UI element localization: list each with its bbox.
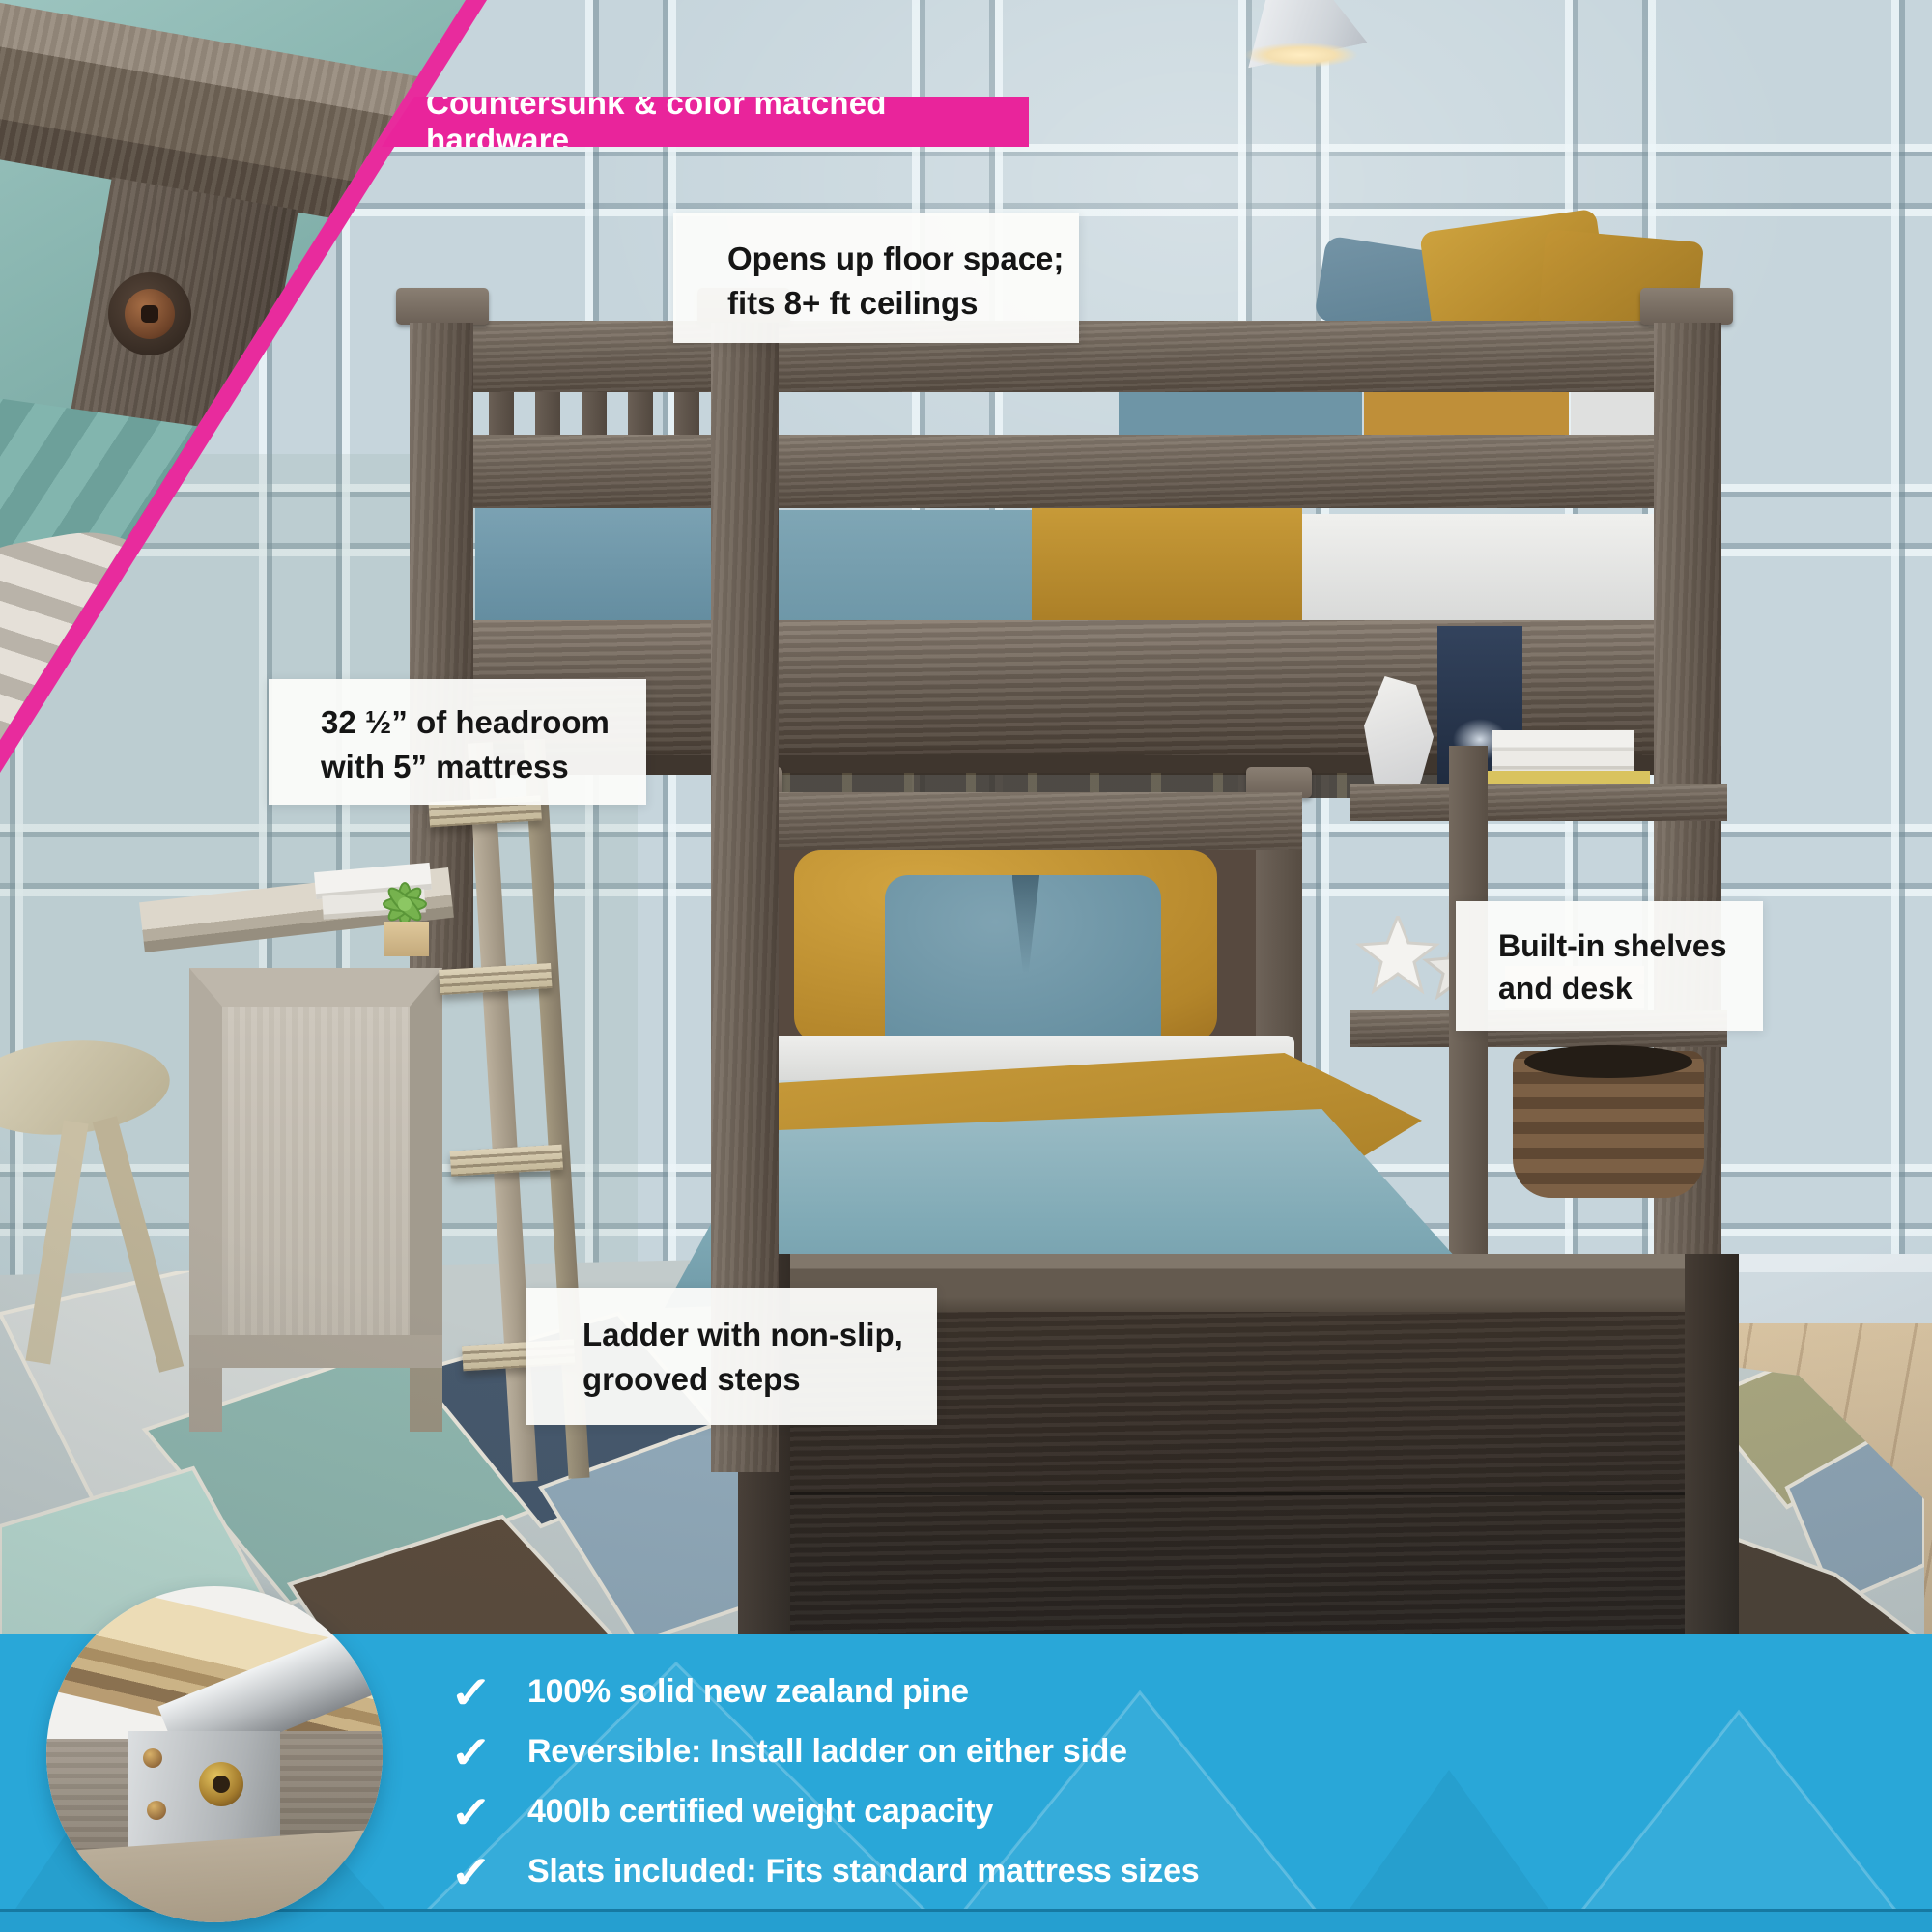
- screw-drive: [141, 305, 158, 323]
- post-cap: [396, 288, 489, 325]
- callout-line: and desk: [1498, 967, 1763, 1009]
- callout-line: Opens up floor space;: [727, 237, 1079, 281]
- footboard-seam: [779, 1492, 1698, 1495]
- checklist-text: 100% solid new zealand pine: [527, 1673, 969, 1711]
- bracket-bolt: [199, 1762, 243, 1806]
- desk-leg: [410, 1368, 442, 1432]
- desk-side-panel: [222, 1007, 410, 1335]
- desk-bottom-rail: [189, 1335, 442, 1368]
- headboard-spindle: [674, 392, 699, 440]
- checklist-text: Slats included: Fits standard mattress s…: [527, 1853, 1199, 1890]
- product-infographic: Countersunk & color matched hardware Ope…: [0, 0, 1932, 1932]
- lamp-glow: [1244, 43, 1358, 68]
- checklist-item: ✓ Reversible: Install ladder on either s…: [454, 1729, 1199, 1775]
- checklist-item: ✓ 100% solid new zealand pine: [454, 1669, 1199, 1715]
- callout-headroom: 32 ½” of headroom with 5” mattress: [269, 679, 646, 805]
- callout-ladder: Ladder with non-slip, grooved steps: [526, 1288, 937, 1425]
- check-icon: ✓: [450, 1786, 512, 1838]
- callout-floor-space: Opens up floor space; fits 8+ ft ceiling…: [673, 213, 1079, 343]
- callout-shelves-desk: Built-in shelves and desk: [1456, 901, 1763, 1031]
- bracket-screw: [143, 1748, 162, 1768]
- callout-line: with 5” mattress: [321, 745, 646, 789]
- loft-blanket-edge: [1032, 508, 1302, 622]
- headboard-spindle: [535, 392, 560, 440]
- wicker-basket: [1513, 1051, 1704, 1198]
- checklist-rows: ✓ 100% solid new zealand pine ✓ Reversib…: [454, 1669, 1199, 1894]
- loft-mattress-side-blue: [475, 506, 719, 622]
- headboard-spindle: [582, 392, 607, 440]
- checklist-text: Reversible: Install ladder on either sid…: [527, 1733, 1127, 1771]
- headboard-spindle: [489, 392, 514, 440]
- ladder-tread: [450, 1145, 563, 1177]
- twin-pillow-blue: [885, 875, 1161, 1063]
- callout-line: Ladder with non-slip,: [582, 1313, 937, 1357]
- ladder-tread: [439, 963, 552, 995]
- loft-mattress-white: [1302, 514, 1656, 622]
- checklist-text: 400lb certified weight capacity: [527, 1793, 993, 1831]
- checklist-item: ✓ 400lb certified weight capacity: [454, 1789, 1199, 1834]
- callout-line: 32 ½” of headroom: [321, 700, 646, 745]
- desk-leg: [189, 1368, 222, 1432]
- checklist-item: ✓ Slats included: Fits standard mattress…: [454, 1849, 1199, 1894]
- headboard-spindle: [628, 392, 653, 440]
- twin-footboard-post-right: [1685, 1254, 1739, 1644]
- feature-banner: Countersunk & color matched hardware: [382, 97, 1029, 147]
- check-icon: ✓: [450, 1666, 512, 1719]
- check-icon: ✓: [450, 1846, 512, 1898]
- slat-hardware-inset-photo: [46, 1586, 383, 1922]
- loft-guard-rail: [410, 435, 1721, 508]
- callout-line: grooved steps: [582, 1357, 937, 1402]
- bracket-screw: [147, 1801, 166, 1820]
- plant-pot: [384, 922, 429, 956]
- post-cap: [1640, 288, 1733, 325]
- callout-line: Built-in shelves: [1498, 924, 1763, 967]
- callout-line: fits 8+ ft ceilings: [727, 281, 1079, 326]
- check-icon: ✓: [450, 1726, 512, 1778]
- twin-headboard-rail: [726, 792, 1302, 852]
- shelf-board-upper: [1350, 784, 1727, 821]
